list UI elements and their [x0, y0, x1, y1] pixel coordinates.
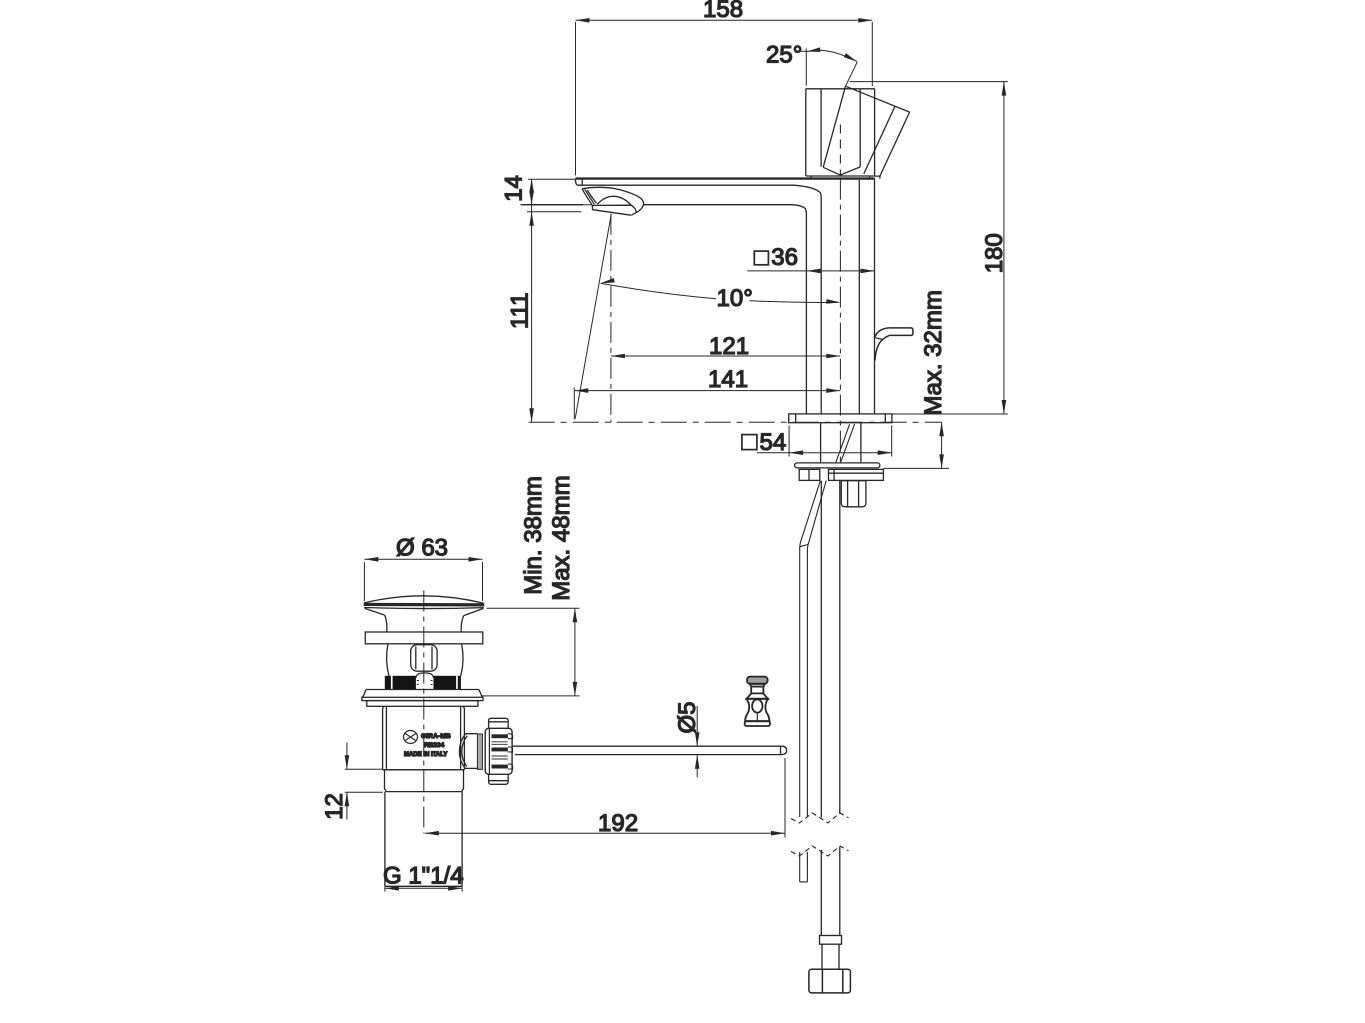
svg-text:G 1"1/4: G 1"1/4: [383, 863, 464, 890]
svg-text:141: 141: [708, 366, 748, 393]
svg-text:Min. 38mm: Min. 38mm: [520, 476, 547, 595]
svg-text:192: 192: [598, 810, 638, 837]
svg-text:GIRA-MB: GIRA-MB: [421, 733, 451, 740]
svg-text:Ø5: Ø5: [674, 701, 701, 733]
svg-text:54: 54: [760, 429, 787, 456]
svg-text:Ø 63: Ø 63: [396, 534, 448, 561]
svg-text:Max. 32mm: Max. 32mm: [920, 290, 947, 415]
svg-text:121: 121: [709, 333, 749, 360]
svg-text:158: 158: [703, 0, 743, 23]
svg-text:MADE IN ITALY: MADE IN ITALY: [404, 752, 447, 758]
svg-text:12: 12: [321, 793, 348, 820]
svg-text:111: 111: [507, 293, 534, 329]
svg-text:RB234: RB234: [424, 742, 445, 749]
svg-text:36: 36: [771, 244, 798, 271]
svg-text:25°: 25°: [766, 42, 802, 69]
svg-text:180: 180: [981, 233, 1008, 273]
svg-text:Max. 48mm: Max. 48mm: [548, 475, 575, 600]
svg-text:10°: 10°: [717, 285, 753, 312]
svg-text:14: 14: [501, 175, 528, 202]
